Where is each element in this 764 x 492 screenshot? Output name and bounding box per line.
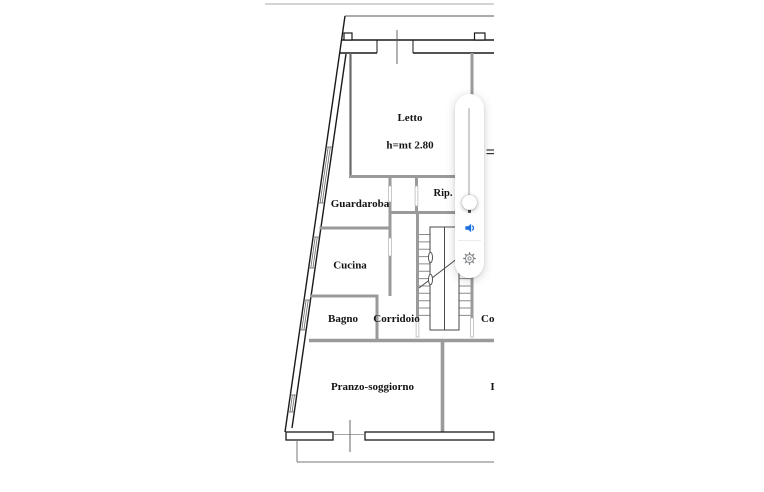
settings-button[interactable] [459,247,481,269]
overlay-divider [458,240,481,241]
room-label-corridoio: Corridoio [373,313,420,325]
pilaster-left [344,33,352,40]
volume-control-overlay [455,94,484,278]
room-label-guardaroba: Guardaroba [331,198,390,210]
door-jamb [389,238,392,256]
volume-button[interactable] [459,217,481,239]
floor-plan: Letto h=mt 2.80 Guardaroba Rip. Cucina B… [0,0,764,492]
window-symbol-right-edge [487,150,495,154]
door-jamb [415,186,418,206]
room-label-bagno: Bagno [328,313,358,325]
pilaster-right [475,33,486,40]
exterior-wall-left-slanted [285,16,346,432]
room-label-letto: Letto [397,112,423,124]
balcony-outline-top [265,4,494,16]
window-symbols-left-wall [288,147,333,412]
exterior-wall-bottom [286,420,494,462]
room-label-cucina: Cucina [333,260,367,272]
room-height-note: h=mt 2.80 [386,140,434,152]
volume-slider-track[interactable] [468,108,470,196]
door-jamb [471,318,474,337]
gear-icon [462,251,477,266]
volume-slider-thumb[interactable] [462,195,477,210]
room-label-partial-right: Co [481,313,495,325]
room-label-rip: Rip. [434,188,453,199]
room-label-partial-bottom-right: I [490,381,494,393]
speaker-icon [463,221,477,235]
room-label-pranzo-soggiorno: Pranzo-soggiorno [331,381,415,393]
